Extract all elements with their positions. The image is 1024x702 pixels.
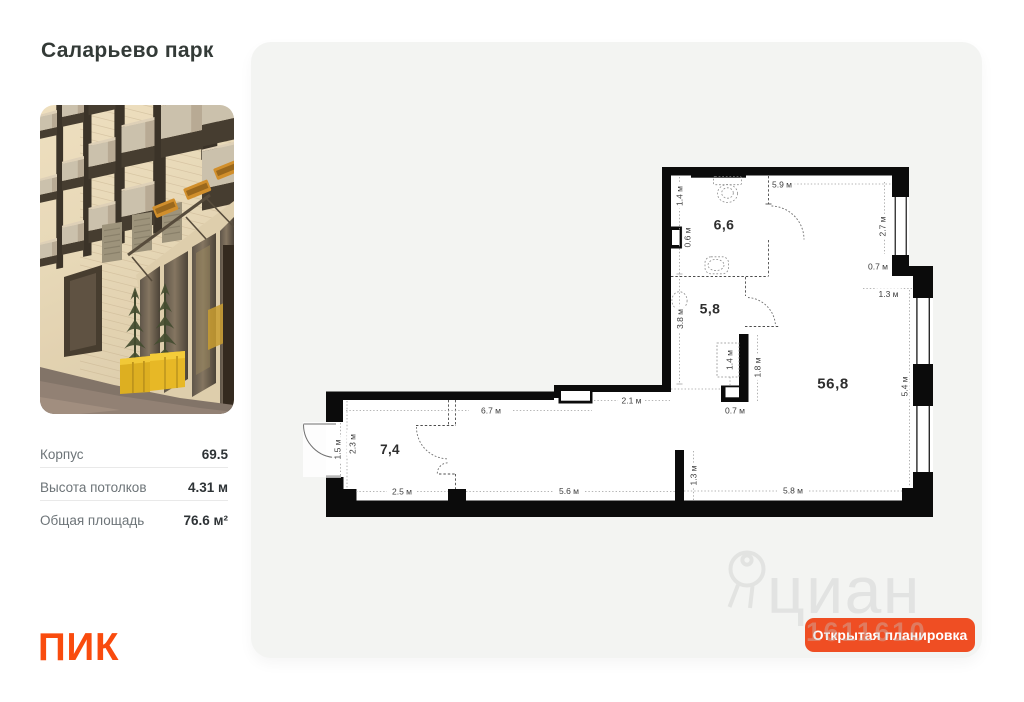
svg-text:2.3 м: 2.3 м [348,434,358,454]
svg-text:1.5 м: 1.5 м [333,439,343,459]
svg-text:5.9 м: 5.9 м [772,180,792,190]
svg-text:0.7 м: 0.7 м [725,406,745,416]
svg-text:5,8: 5,8 [700,301,721,317]
svg-text:56,8: 56,8 [817,376,849,393]
svg-text:1.8 м: 1.8 м [753,357,763,377]
svg-text:1.3 м: 1.3 м [689,465,699,485]
svg-text:7,4: 7,4 [380,442,400,457]
svg-text:1.3 м: 1.3 м [878,289,898,299]
svg-text:0.6 м: 0.6 м [683,227,693,247]
svg-text:6.7 м: 6.7 м [481,406,501,416]
svg-text:5.4 м: 5.4 м [900,376,910,396]
svg-text:2.5 м: 2.5 м [392,487,412,497]
svg-text:1.4 м: 1.4 м [675,186,685,206]
svg-text:5.8 м: 5.8 м [783,486,803,496]
svg-text:5.6 м: 5.6 м [559,486,579,496]
svg-text:3.8 м: 3.8 м [675,309,685,329]
svg-text:6,6: 6,6 [714,217,735,233]
svg-text:2.7 м: 2.7 м [878,216,888,236]
svg-text:2.1 м: 2.1 м [621,396,641,406]
svg-text:0.7 м: 0.7 м [868,262,888,272]
svg-text:1.4 м: 1.4 м [725,350,735,370]
